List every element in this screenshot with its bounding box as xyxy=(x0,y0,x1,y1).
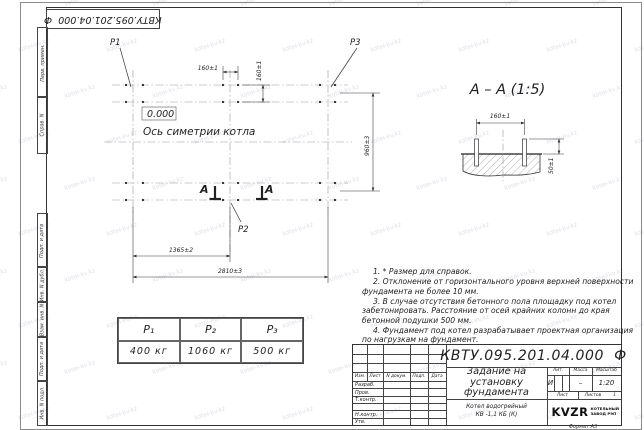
tb-col-list: Лист xyxy=(367,372,383,381)
section-bolt-right xyxy=(523,139,527,166)
tb-row-tkontr: Т.контр. xyxy=(355,397,377,403)
tb-mass-label: Масса xyxy=(569,367,592,375)
loads-header-p3: Р₃ xyxy=(241,318,303,341)
tb-row-prov: Пров. xyxy=(355,390,370,396)
tb-col-izm: Изм. xyxy=(353,372,367,381)
tb-product: Котел водогрейный КВ -1,1 КБ (К) xyxy=(446,399,547,425)
title-block: Изм. Лист N докум. Подп. Дата Разраб. Пр… xyxy=(352,344,622,426)
tb-product-line: Котел водогрейный xyxy=(466,404,527,412)
tb-product-line: КВ -1,1 КБ (К) xyxy=(476,412,518,420)
plan-label-p2: Р2 xyxy=(238,225,249,235)
tb-sheet-label: Лист xyxy=(547,391,578,399)
dim-top-horizontal: 160±1 xyxy=(198,65,218,72)
loads-table: Р₁ Р₂ Р₃ 400 кг 1060 кг 500 кг xyxy=(117,317,304,364)
loads-value-p3: 500 кг xyxy=(241,341,303,364)
loads-value-p1: 400 кг xyxy=(118,341,180,364)
tb-row-razrab: Разраб. xyxy=(355,382,375,388)
tb-sheets-value: 1 xyxy=(608,391,621,399)
loads-header-p2: Р₂ xyxy=(180,318,242,341)
dim-right-vertical: 960±3 xyxy=(364,136,371,156)
tb-mass-value: – xyxy=(569,375,592,392)
note-item: 4. Фундамент под котел разрабатывает про… xyxy=(362,326,638,345)
axis-caption: Ось симетрии котла xyxy=(143,126,273,138)
loads-value-p2: 1060 кг xyxy=(180,341,242,364)
anchor-bolt-dots xyxy=(125,84,336,201)
plan-label-p1: Р1 xyxy=(110,38,121,48)
section-letter-right: А xyxy=(264,183,274,196)
logo-text: KVZR xyxy=(551,405,588,419)
format-label: Формат А3 xyxy=(546,424,620,430)
tb-scale-value: 1:20 xyxy=(592,375,621,392)
note-item: 1. * Размер для справок. xyxy=(362,267,638,276)
tb-drawing-title: Задание на установку фундамента xyxy=(446,367,547,399)
note-item: 2. Отклонение от горизонтального уровня … xyxy=(362,277,638,296)
section-cut-marks xyxy=(210,186,268,199)
tb-row-utv: Утв. xyxy=(355,419,366,425)
note-item: 3. В случае отсутствия бетонного пола пл… xyxy=(362,297,638,325)
section-bolt-left xyxy=(475,139,479,166)
tb-row-nkontr: Н.контр. xyxy=(355,412,377,418)
plan-centerlines xyxy=(104,70,352,252)
tb-lit-label: Лит. xyxy=(547,367,569,375)
manufacturer-logo: KVZR КОТЕЛЬНЫЙ ЗАВОД РЭП xyxy=(549,400,619,424)
dim-top-vertical: 160±1 xyxy=(256,61,263,81)
plan-label-p3: Р3 xyxy=(350,38,361,48)
drawing-sheet: kotel-kv.kzkotel-kv.kzkotel-kv.kzkotel-k… xyxy=(0,0,644,430)
dim-bottom-outer: 2810±3 xyxy=(218,268,242,275)
section-letter-left: А xyxy=(199,183,209,196)
tb-col-podp: Подп. xyxy=(410,372,428,381)
tb-col-ndokum: N докум. xyxy=(383,372,410,381)
tb-scale-label: Масштаб xyxy=(592,367,621,375)
tb-sheets-label: Листов xyxy=(578,391,608,399)
dim-bottom-inner: 1365±2 xyxy=(169,247,193,254)
tb-title-line: фундамента xyxy=(464,388,529,398)
tb-doc-number: КВТУ.095.201.04.000 Ф xyxy=(446,345,621,367)
loads-header-p1: Р₁ xyxy=(118,318,180,341)
section-dim-vertical: 50±1 xyxy=(548,158,555,174)
elevation-value: 0.000 xyxy=(147,109,174,120)
notes-block: 1. * Размер для справок. 2. Отклонение о… xyxy=(362,267,638,346)
tb-lit-value: И xyxy=(547,375,554,392)
section-view-title: А – А (1:5) xyxy=(450,82,565,98)
section-dim-horizontal: 160±1 xyxy=(490,113,510,120)
logo-subtext: КОТЕЛЬНЫЙ ЗАВОД РЭП xyxy=(590,407,619,417)
tb-col-data: Дата xyxy=(428,372,446,381)
section-dimensions xyxy=(477,119,565,154)
